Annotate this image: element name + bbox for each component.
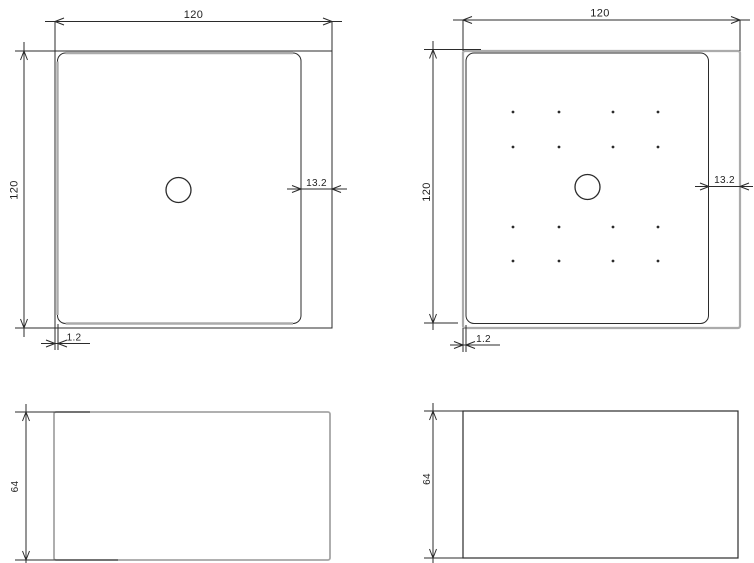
dim-label-rim-offset: 13.2 (714, 175, 735, 186)
anti-slip-dot (512, 111, 515, 114)
dim-label-height: 120 (421, 182, 433, 202)
plan-view-plain-dimensions: 120 120 13.2 1.2 (9, 9, 348, 350)
dim-label-height: 64 (422, 473, 433, 485)
anti-slip-dot (612, 146, 615, 149)
anti-slip-dot (612, 111, 615, 114)
plan-view-dotted (463, 51, 740, 328)
anti-slip-dot (512, 226, 515, 229)
tray-basin-edge (466, 53, 709, 324)
anti-slip-dot (558, 226, 561, 229)
plan-view-dotted-dimensions: 120 120 13.2 1.2 (421, 8, 753, 353)
anti-slip-dots (512, 111, 660, 263)
anti-slip-dot (657, 111, 660, 114)
tray-basin-edge (58, 53, 302, 324)
dim-label-height: 64 (10, 481, 21, 493)
side-view-right: 64 (422, 403, 738, 563)
anti-slip-dot (512, 260, 515, 263)
tray-side-profile (463, 411, 738, 558)
anti-slip-dot (612, 260, 615, 263)
tray-outer-edge (463, 51, 740, 328)
anti-slip-dot (512, 146, 515, 149)
anti-slip-dot (558, 260, 561, 263)
drain-hole (575, 175, 600, 200)
anti-slip-dot (558, 111, 561, 114)
dim-label-height: 120 (9, 180, 21, 200)
technical-drawing-canvas: 120 120 13.2 1.2 120 (0, 0, 754, 563)
drain-hole (166, 178, 191, 203)
dim-label-width: 120 (590, 8, 610, 20)
anti-slip-dot (657, 260, 660, 263)
tray-side-profile (54, 412, 330, 560)
dim-label-edge-offset: 1.2 (476, 334, 491, 345)
dim-label-edge-offset: 1.2 (67, 333, 82, 344)
dim-label-width: 120 (184, 9, 204, 21)
side-view-left: 64 (10, 404, 330, 563)
anti-slip-dot (657, 146, 660, 149)
anti-slip-dot (558, 146, 561, 149)
anti-slip-dot (657, 226, 660, 229)
anti-slip-dot (612, 226, 615, 229)
dim-label-rim-offset: 13.2 (306, 178, 327, 189)
